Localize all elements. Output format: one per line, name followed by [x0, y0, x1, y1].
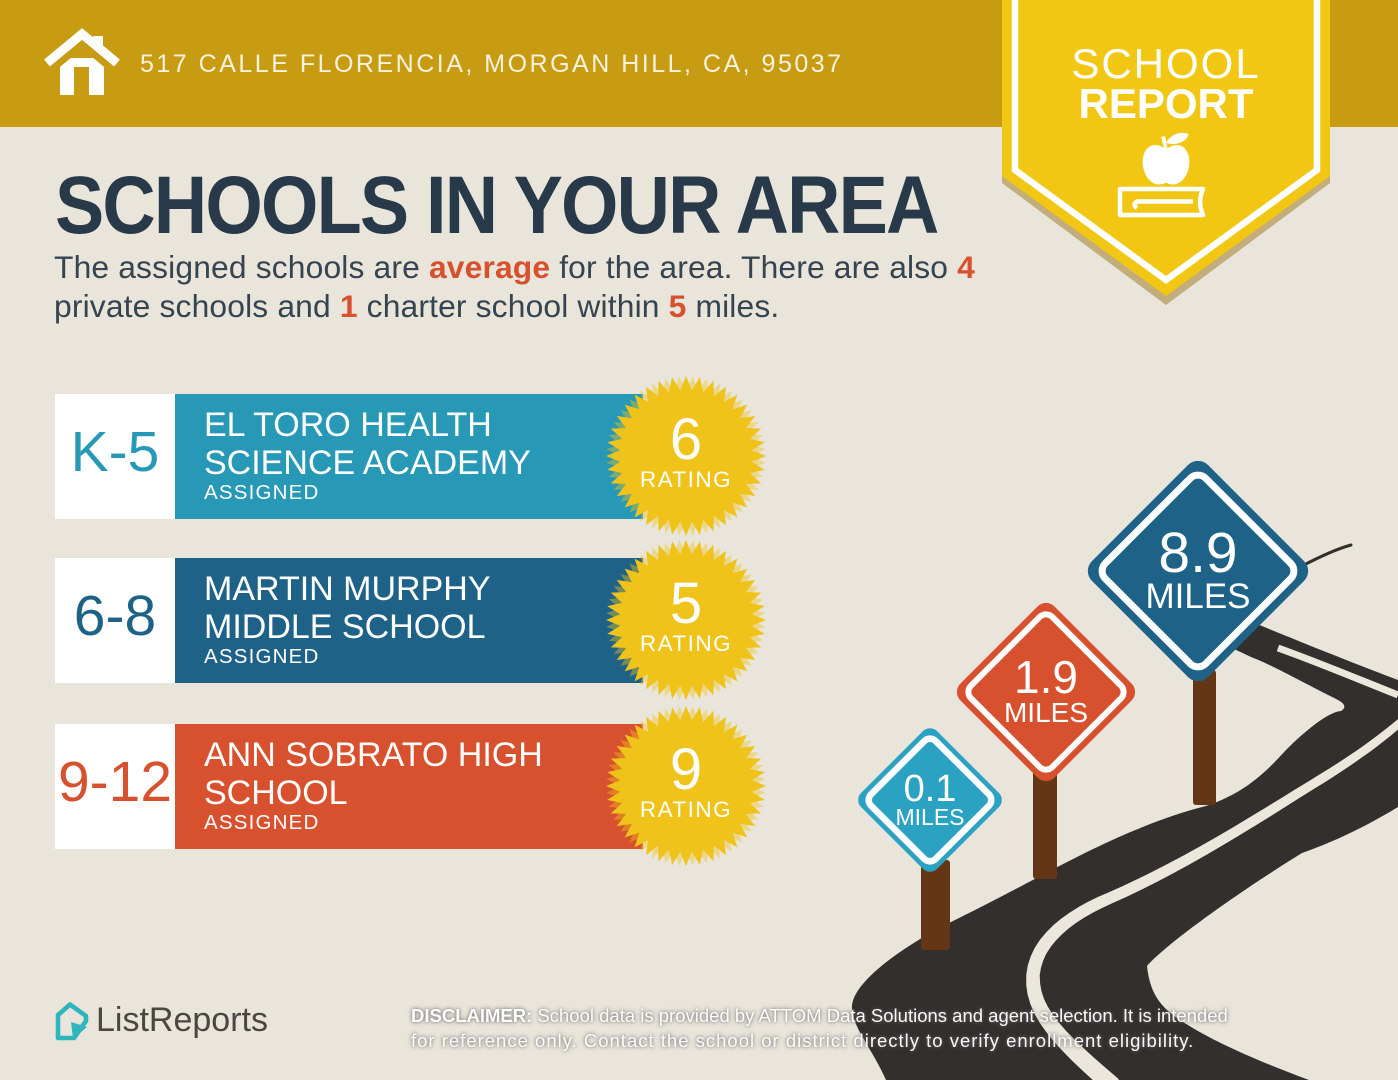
svg-text:9: 9 — [670, 737, 702, 802]
svg-text:1.9: 1.9 — [1014, 651, 1078, 703]
svg-text:MILES: MILES — [1004, 697, 1088, 728]
svg-text:RATING: RATING — [640, 631, 732, 656]
svg-text:REPORT: REPORT — [1078, 80, 1253, 127]
svg-text:MILES: MILES — [1145, 577, 1250, 616]
svg-text:RATING: RATING — [640, 467, 732, 492]
svg-text:MILES: MILES — [895, 804, 964, 830]
svg-text:8.9: 8.9 — [1158, 521, 1237, 585]
svg-text:5: 5 — [670, 571, 702, 636]
svg-text:6: 6 — [670, 407, 702, 472]
svg-text:RATING: RATING — [640, 797, 732, 822]
